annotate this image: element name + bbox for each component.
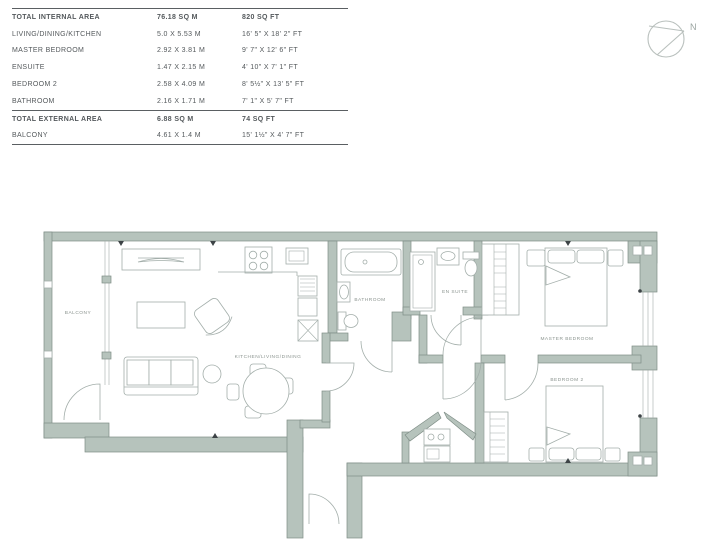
living-door: [326, 363, 354, 391]
bedroom2-door: [505, 363, 538, 400]
bedroom2-wardrobe: [484, 412, 508, 462]
floorplan-page: TOTAL INTERNAL AREA 76.18 sq m 820 sq ft…: [0, 0, 712, 551]
compass-north-label: N: [690, 22, 697, 32]
bathroom-toilet: [338, 312, 358, 330]
kitchen-living-dining-label: KITCHEN/LIVING/DINING: [235, 354, 302, 360]
dining-set: [227, 364, 293, 418]
balcony-door: [64, 384, 100, 420]
ensuite-sink: [437, 248, 459, 265]
bathtub: [341, 249, 401, 275]
north-compass: N: [648, 21, 697, 57]
utility-appliances: [424, 429, 450, 462]
tv-unit: [122, 249, 200, 270]
master-bedroom-label: MASTER BEDROOM: [540, 336, 593, 342]
master-wardrobe: [482, 244, 519, 315]
sofa: [124, 357, 198, 395]
bedroom2-window: [643, 370, 653, 418]
bathroom-door: [361, 341, 392, 372]
balcony-label: BALCONY: [65, 310, 92, 316]
side-table: [203, 365, 221, 383]
bathroom-label: BATHROOM: [354, 297, 385, 303]
bathroom-sink: [337, 282, 350, 302]
bedroom2-bed: [529, 386, 620, 462]
ensuite-label: EN SUITE: [442, 289, 468, 295]
bedroom2-label: BEDROOM 2: [550, 377, 583, 383]
shower: [410, 252, 435, 311]
entrance-door: [309, 494, 339, 524]
armchair: [191, 295, 236, 340]
floor-plan: N: [0, 0, 712, 551]
master-door: [443, 317, 481, 355]
master-bed: [527, 248, 623, 326]
kitchen-hob: [245, 247, 272, 273]
compass-needle: [649, 26, 684, 55]
coffee-table: [137, 302, 185, 328]
master-window: [643, 292, 653, 346]
